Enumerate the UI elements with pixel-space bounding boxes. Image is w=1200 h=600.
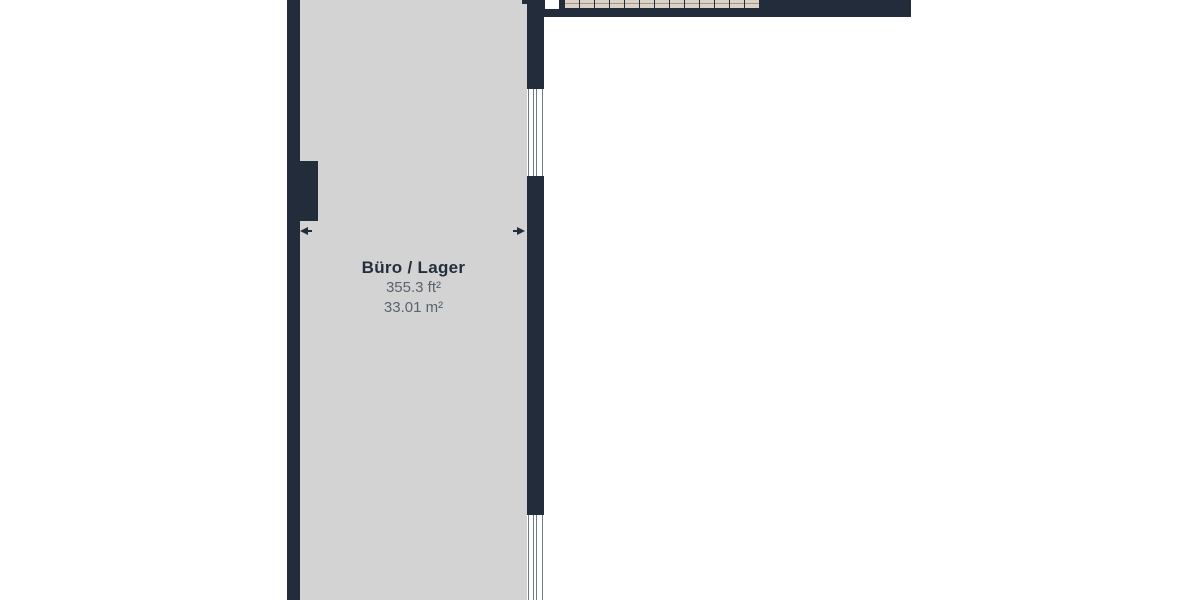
top-wall-notch — [545, 0, 559, 9]
room-name: Büro / Lager — [300, 257, 527, 278]
window-pane-line — [542, 89, 543, 176]
wall-pillar — [300, 161, 318, 221]
room-area-metric: 33.01 m² — [300, 298, 527, 318]
window-pane-line — [533, 515, 534, 600]
window-pane-line — [536, 515, 537, 600]
stair-nosing-line — [565, 3, 759, 4]
room-area-imperial: 355.3 ft² — [300, 278, 527, 298]
arrow-left-icon — [300, 227, 308, 235]
stair-tread — [700, 0, 714, 8]
left-wall — [287, 0, 300, 600]
window-pane-line — [536, 89, 537, 176]
window-pane-line — [528, 515, 529, 600]
wall-stub — [522, 0, 527, 4]
stair-tread — [655, 0, 669, 8]
arrow-tail — [513, 230, 517, 232]
arrow-tail — [308, 230, 312, 232]
stair-tread — [685, 0, 699, 8]
stair-tread — [580, 0, 594, 8]
window-pane-line — [528, 89, 529, 176]
floorplan-canvas: Büro / Lager 355.3 ft² 33.01 m² — [0, 0, 1200, 600]
stair-tread — [565, 0, 579, 8]
dimension-arrow-right — [513, 227, 525, 235]
window-lower — [527, 515, 544, 600]
window-pane-line — [542, 515, 543, 600]
stair-tread — [610, 0, 624, 8]
stair-tread — [640, 0, 654, 8]
stair-tread — [730, 0, 744, 8]
right-wall-middle-segment — [527, 176, 544, 515]
arrow-right-icon — [517, 227, 525, 235]
room-label-block: Büro / Lager 355.3 ft² 33.01 m² — [300, 257, 527, 318]
stair-tread — [745, 0, 759, 8]
stair-tread — [715, 0, 729, 8]
stair-tread — [595, 0, 609, 8]
dimension-arrow-left — [300, 227, 312, 235]
right-wall-upper-segment — [527, 0, 544, 89]
window-upper — [527, 89, 544, 176]
staircase — [565, 0, 759, 8]
stair-tread — [670, 0, 684, 8]
window-pane-line — [533, 89, 534, 176]
stair-tread — [625, 0, 639, 8]
